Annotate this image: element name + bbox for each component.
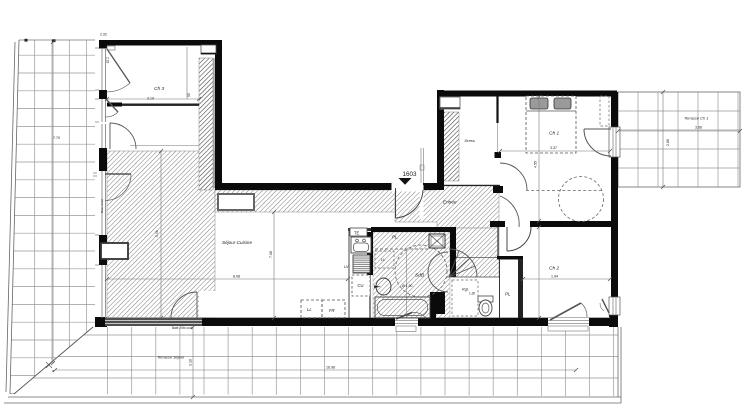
svg-text:Terrasse Ch 1: Terrasse Ch 1 (684, 116, 708, 121)
svg-text:4.55: 4.55 (534, 161, 538, 168)
svg-text:CU: CU (358, 283, 364, 288)
svg-text:Séjour-Cuisine: Séjour-Cuisine (222, 240, 252, 245)
svg-text:FR: FR (329, 308, 335, 313)
svg-text:LV: LV (344, 264, 349, 269)
svg-text:LL: LL (381, 257, 386, 262)
svg-text:7.70: 7.70 (53, 136, 60, 140)
svg-text:Baie vitrée: Baie vitrée (100, 198, 104, 213)
svg-text:3.37: 3.37 (550, 146, 557, 150)
svg-text:Ch 2: Ch 2 (549, 266, 559, 272)
svg-text:1.94: 1.94 (551, 275, 558, 279)
svg-text:55: 55 (187, 93, 191, 97)
svg-text:Dress.: Dress. (465, 138, 476, 143)
svg-text:SdB: SdB (415, 273, 425, 279)
svg-text:TE: TE (354, 231, 360, 236)
svg-text:8.08: 8.08 (233, 275, 240, 279)
svg-text:Terrasse Séjour: Terrasse Séjour (157, 355, 185, 360)
svg-text:Ch 3: Ch 3 (154, 86, 164, 92)
svg-text:16.98: 16.98 (326, 366, 335, 370)
svg-text:3.10: 3.10 (189, 359, 193, 366)
svg-text:3.66: 3.66 (695, 126, 702, 130)
svg-text:2.86: 2.86 (666, 139, 670, 146)
svg-text:1,30: 1,30 (469, 292, 475, 296)
svg-text:5.06: 5.06 (155, 230, 159, 237)
svg-text:Baie 2Vtx coul.: Baie 2Vtx coul. (172, 326, 193, 330)
svg-text:3.19: 3.19 (147, 97, 154, 101)
svg-text:a: a (52, 369, 54, 373)
svg-text:Rgt.: Rgt. (462, 288, 469, 292)
svg-text:7.08: 7.08 (269, 251, 273, 258)
svg-text:Ø 1,50: Ø 1,50 (402, 284, 413, 288)
svg-text:2.33: 2.33 (100, 33, 107, 37)
svg-text:PL: PL (505, 292, 511, 297)
svg-text:1603: 1603 (403, 171, 418, 178)
svg-text:Entrée: Entrée (443, 200, 457, 205)
svg-text:PL.: PL. (392, 235, 399, 240)
svg-text:LL: LL (307, 307, 312, 312)
svg-text:2.33: 2.33 (106, 57, 110, 63)
svg-text:Ch 1: Ch 1 (549, 131, 559, 137)
